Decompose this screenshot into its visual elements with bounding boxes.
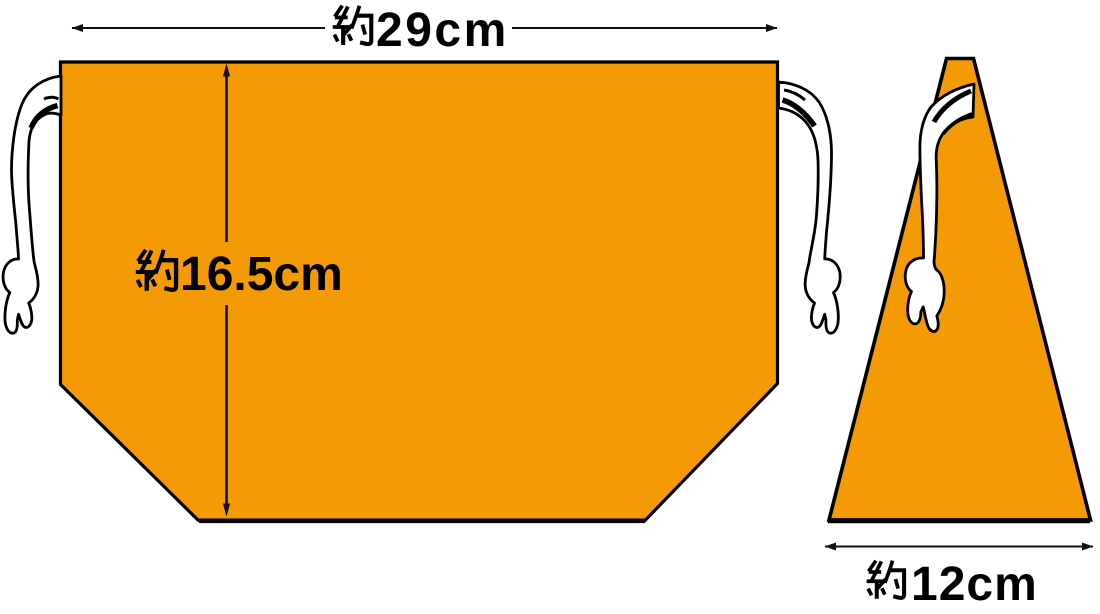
svg-text:16.5cm: 16.5cm xyxy=(180,248,343,301)
svg-text:29cm: 29cm xyxy=(376,4,509,57)
svg-text:12cm: 12cm xyxy=(911,558,1038,609)
